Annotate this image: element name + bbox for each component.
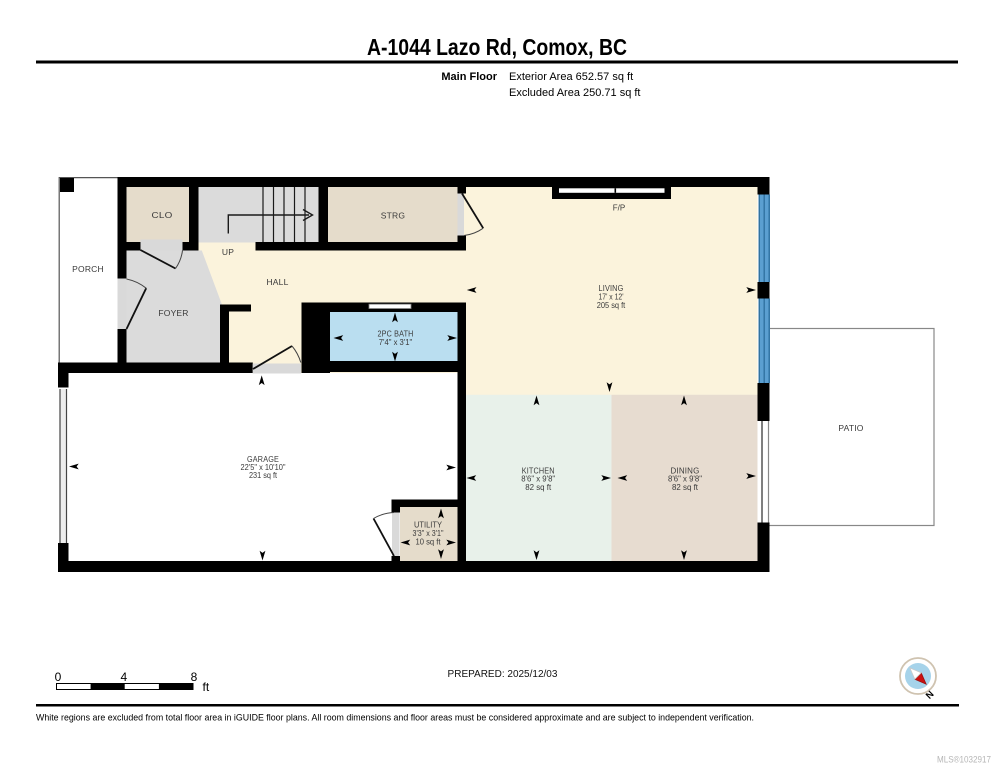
svg-text:8: 8 xyxy=(191,670,198,684)
svg-text:205 sq ft: 205 sq ft xyxy=(597,301,626,310)
svg-text:PORCH: PORCH xyxy=(72,264,104,274)
svg-text:Exterior Area 652.57 sq ft: Exterior Area 652.57 sq ft xyxy=(509,71,633,83)
svg-text:HALL: HALL xyxy=(266,277,288,287)
svg-text:PREPARED: 2025/12/03: PREPARED: 2025/12/03 xyxy=(448,669,558,680)
svg-text:Excluded Area 250.71 sq ft: Excluded Area 250.71 sq ft xyxy=(509,87,640,99)
svg-text:7'4" x 3'1": 7'4" x 3'1" xyxy=(379,338,413,347)
svg-text:A-1044 Lazo Rd, Comox, BC: A-1044 Lazo Rd, Comox, BC xyxy=(367,34,627,60)
svg-text:10 sq ft: 10 sq ft xyxy=(416,538,442,547)
svg-text:STRG: STRG xyxy=(381,210,405,220)
svg-text:0: 0 xyxy=(55,670,62,684)
svg-text:LIVING: LIVING xyxy=(599,283,624,293)
svg-text:2PC BATH: 2PC BATH xyxy=(378,329,414,339)
svg-text:82 sq ft: 82 sq ft xyxy=(672,483,699,492)
svg-text:82 sq ft: 82 sq ft xyxy=(525,483,552,492)
svg-text:Main Floor: Main Floor xyxy=(441,71,497,83)
svg-text:White regions are excluded fro: White regions are excluded from total fl… xyxy=(36,713,754,723)
svg-text:F/P: F/P xyxy=(613,204,625,213)
svg-text:4: 4 xyxy=(120,670,127,684)
svg-text:231 sq ft: 231 sq ft xyxy=(249,471,278,480)
svg-text:CLO: CLO xyxy=(152,210,173,220)
svg-text:ft: ft xyxy=(203,680,210,694)
svg-text:MLS®1032917: MLS®1032917 xyxy=(937,755,991,766)
svg-text:UP: UP xyxy=(222,247,234,257)
svg-text:PATIO: PATIO xyxy=(838,423,863,433)
svg-text:FOYER: FOYER xyxy=(158,308,188,318)
